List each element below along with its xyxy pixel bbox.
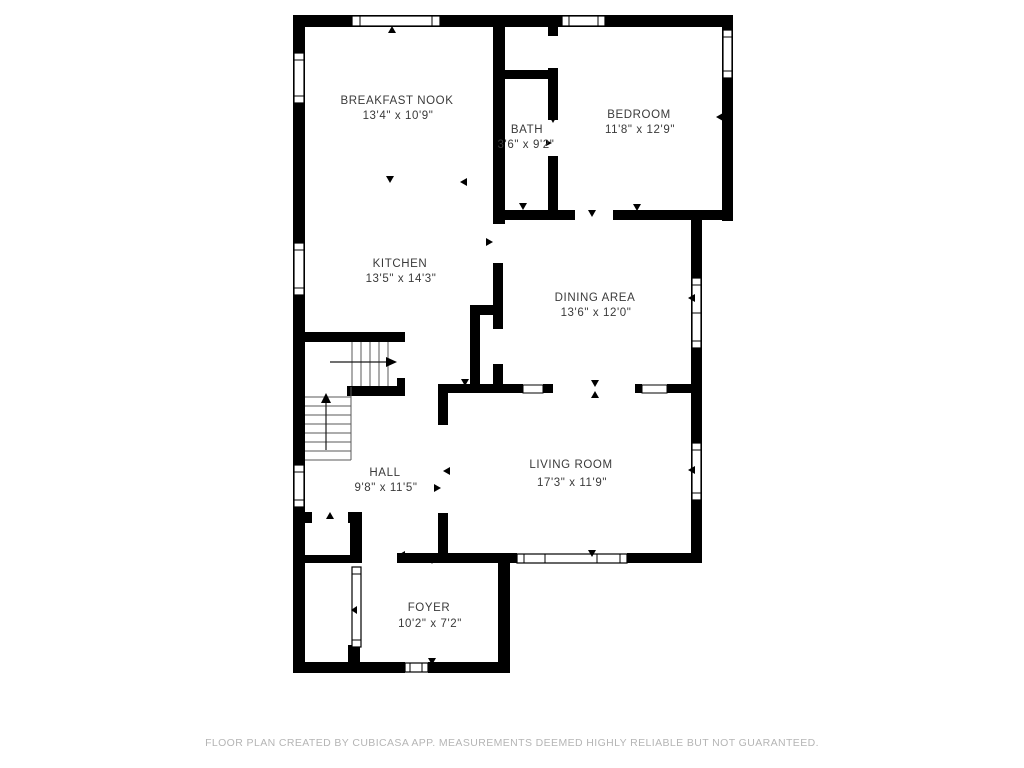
wall-closet-top-a xyxy=(302,512,312,523)
marker-dining-living-open-b xyxy=(591,391,599,398)
wall-living-bottom-b xyxy=(627,553,702,563)
wall-left xyxy=(293,15,305,673)
marker-bedroom-window xyxy=(716,113,723,121)
wall-dining-living-b xyxy=(543,384,553,393)
dims-bedroom: 11'8" x 12'9" xyxy=(605,124,675,136)
label-hall: HALL xyxy=(369,467,400,479)
window-left-middle xyxy=(294,243,304,295)
stair-arrowhead-up xyxy=(321,393,331,403)
footer-disclaimer: FLOOR PLAN CREATED BY CUBICASA APP. MEAS… xyxy=(205,737,819,749)
wall-foyer-top xyxy=(397,553,517,563)
marker-bedroom-door xyxy=(588,210,596,217)
dims-hall: 9'8" x 11'5" xyxy=(354,482,417,494)
marker-nook-kitchen-a xyxy=(386,176,394,183)
window-bedroom-top xyxy=(562,16,605,26)
label-breakfast-nook: BREAKFAST NOOK xyxy=(341,95,454,107)
marker-hall-living-b xyxy=(434,484,441,492)
marker-nook-kitchen-b xyxy=(460,178,467,186)
wall-bedroom-bottom-a xyxy=(493,210,575,220)
wall-bath-right-b xyxy=(548,68,558,120)
marker-bath-bottom xyxy=(519,203,527,210)
wall-kitchen-right-upper xyxy=(493,263,503,329)
stair-arrowhead-right xyxy=(386,357,397,367)
window-foyer-bottom xyxy=(405,663,428,672)
window-bedroom-right xyxy=(723,30,732,78)
marker-top-window xyxy=(388,26,396,33)
marker-hall-living-a xyxy=(443,467,450,475)
floor-plan-page: BREAKFAST NOOK 13'4" x 10'9" BATH 3'6" x… xyxy=(0,0,1024,768)
label-bath: BATH xyxy=(511,124,543,136)
marker-dining-living-open-a xyxy=(591,380,599,387)
marker-kitchen-door xyxy=(486,238,493,246)
dims-bath: 3'6" x 9'2" xyxy=(498,139,555,151)
wall-bottom-a xyxy=(293,662,405,673)
opening-dining-living-a xyxy=(523,385,543,393)
label-kitchen: KITCHEN xyxy=(373,258,428,270)
dims-breakfast-nook: 13'4" x 10'9" xyxy=(363,110,434,122)
wall-bedroom-bottom-b xyxy=(613,210,733,220)
opening-dining-living-b xyxy=(642,385,667,393)
wall-chimney-vertical xyxy=(470,305,480,387)
window-left-lower xyxy=(294,465,304,507)
window-left-upper xyxy=(294,53,304,103)
floor-plan-drawing: BREAKFAST NOOK 13'4" x 10'9" BATH 3'6" x… xyxy=(0,0,1024,768)
window-dining-right xyxy=(692,278,701,348)
wall-hall-living-upper xyxy=(438,384,448,425)
wall-hall-living-lower xyxy=(438,513,448,557)
wall-stairs-top xyxy=(300,332,405,342)
wall-dining-living-a xyxy=(438,384,523,393)
wall-kitchen-hall xyxy=(347,386,405,396)
label-living-room: LIVING ROOM xyxy=(529,459,612,471)
marker-closet-door xyxy=(326,512,334,519)
label-dining-area: DINING AREA xyxy=(555,292,636,304)
wall-bath-right-a xyxy=(548,24,558,36)
wall-bottom-b xyxy=(428,662,510,673)
wall-porch-cap xyxy=(348,645,360,663)
wall-bath-left xyxy=(493,27,505,224)
wall-closet-bottom xyxy=(300,555,362,563)
label-foyer: FOYER xyxy=(408,602,451,614)
dims-living-room: 17'3" x 11'9" xyxy=(537,477,607,489)
marker-bedroom-wall xyxy=(633,204,641,211)
wall-foyer-right xyxy=(498,557,510,672)
dims-kitchen: 13'5" x 14'3" xyxy=(366,273,437,285)
wall-bath-right-c xyxy=(548,156,558,210)
label-bedroom: BEDROOM xyxy=(607,109,671,121)
wall-dining-living-c xyxy=(635,384,642,393)
window-breakfast-top xyxy=(352,16,440,26)
dims-dining-area: 13'6" x 12'0" xyxy=(561,307,632,319)
window-living-bottom xyxy=(517,554,627,563)
dims-foyer: 10'2" x 7'2" xyxy=(398,618,462,630)
wall-dining-living-d xyxy=(667,384,701,393)
staircase xyxy=(305,342,397,460)
